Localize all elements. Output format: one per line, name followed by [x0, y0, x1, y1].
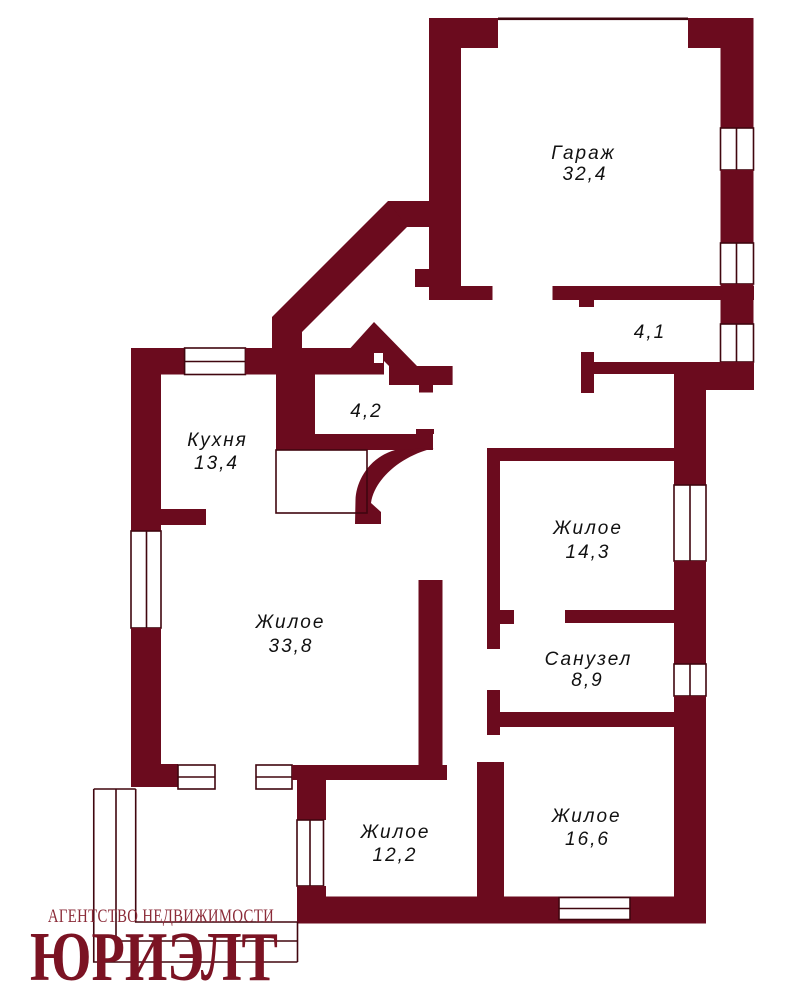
svg-text:4,2: 4,2: [350, 401, 382, 422]
svg-text:Кухня: Кухня: [187, 430, 248, 451]
svg-text:Гараж: Гараж: [551, 143, 615, 164]
svg-text:12,2: 12,2: [373, 845, 418, 866]
svg-text:16,6: 16,6: [565, 829, 610, 850]
svg-text:33,8: 33,8: [269, 636, 314, 657]
svg-text:8,9: 8,9: [571, 670, 603, 691]
svg-text:Жилое: Жилое: [255, 612, 326, 633]
svg-text:Жилое: Жилое: [360, 822, 431, 843]
svg-text:13,4: 13,4: [194, 453, 239, 474]
svg-text:Санузел: Санузел: [545, 649, 633, 670]
svg-text:Жилое: Жилое: [551, 806, 622, 827]
svg-text:ЮРИЭЛТ: ЮРИЭЛТ: [30, 918, 278, 996]
svg-text:4,1: 4,1: [634, 322, 666, 343]
svg-text:Жилое: Жилое: [552, 518, 623, 539]
svg-text:32,4: 32,4: [563, 164, 608, 185]
svg-text:14,3: 14,3: [566, 542, 611, 563]
